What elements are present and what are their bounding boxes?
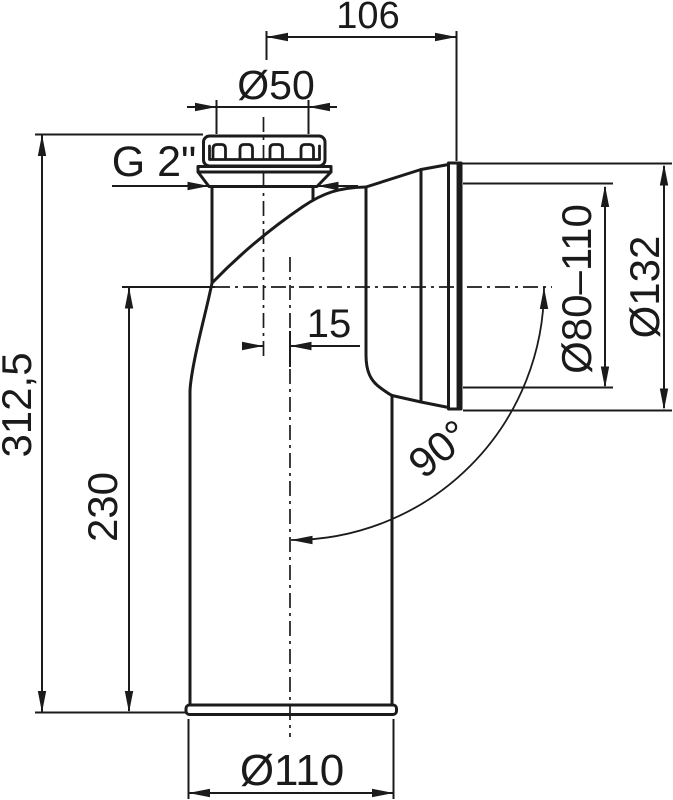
inlet-thread-nut	[198, 136, 331, 187]
dim-label-top-width: 106	[336, 0, 399, 37]
dim-outlet-inner-diameter: Ø80–110	[463, 184, 613, 389]
arrow-down-icon	[38, 691, 46, 713]
arrow-right-icon	[242, 342, 264, 350]
angle-label: 90°	[399, 410, 478, 486]
pipe-bottom-lip	[186, 705, 397, 715]
arrow-down-icon	[660, 389, 668, 411]
nut-castellation	[210, 145, 320, 160]
arrow-up-icon	[125, 287, 133, 309]
arrow-down-icon	[125, 691, 133, 713]
dim-label-pipe-diameter: Ø110	[240, 746, 344, 795]
arrow-right-icon	[435, 33, 457, 41]
body-left-profile	[190, 187, 212, 706]
dim-pipe-diameter: Ø110	[189, 719, 394, 799]
dim-total-height: 312,5	[0, 135, 203, 713]
socket-cone-top	[366, 165, 449, 188]
dim-label-body-height: 230	[79, 472, 126, 542]
arrow-left-icon	[291, 536, 313, 544]
nut-collar	[198, 167, 331, 187]
outlet-socket	[366, 163, 461, 409]
dim-label-outlet-outer-diameter: Ø132	[621, 236, 668, 339]
dim-label-outlet-inner-diameter: Ø80–110	[553, 204, 600, 374]
dim-label-center-offset: 15	[307, 302, 352, 346]
arrow-left-icon	[189, 789, 211, 797]
arrow-right-icon	[195, 103, 217, 111]
body-inner-slant	[212, 187, 366, 283]
socket-joint-line	[366, 187, 392, 396]
dim-label-total-height: 312,5	[0, 352, 40, 457]
drawing-canvas: 312,5 230 Ø110 Ø50 106	[0, 0, 673, 800]
dim-body-height: 230	[79, 287, 215, 713]
thread-size-label: G 2"	[112, 138, 197, 186]
dim-center-offset: 15	[242, 302, 360, 350]
arrow-up-icon	[38, 135, 46, 157]
dim-label-inlet-diameter: Ø50	[237, 62, 315, 108]
arrow-left-icon	[267, 33, 289, 41]
arrow-right-icon	[372, 789, 394, 797]
arrow-up-icon	[660, 164, 668, 186]
arrow-up-icon	[601, 186, 609, 208]
technical-drawing-wc-connector: 312,5 230 Ø110 Ø50 106	[0, 0, 673, 800]
arrow-up-icon	[540, 288, 548, 310]
dim-inlet-diameter: Ø50	[187, 62, 337, 134]
arrow-down-icon	[601, 367, 609, 389]
